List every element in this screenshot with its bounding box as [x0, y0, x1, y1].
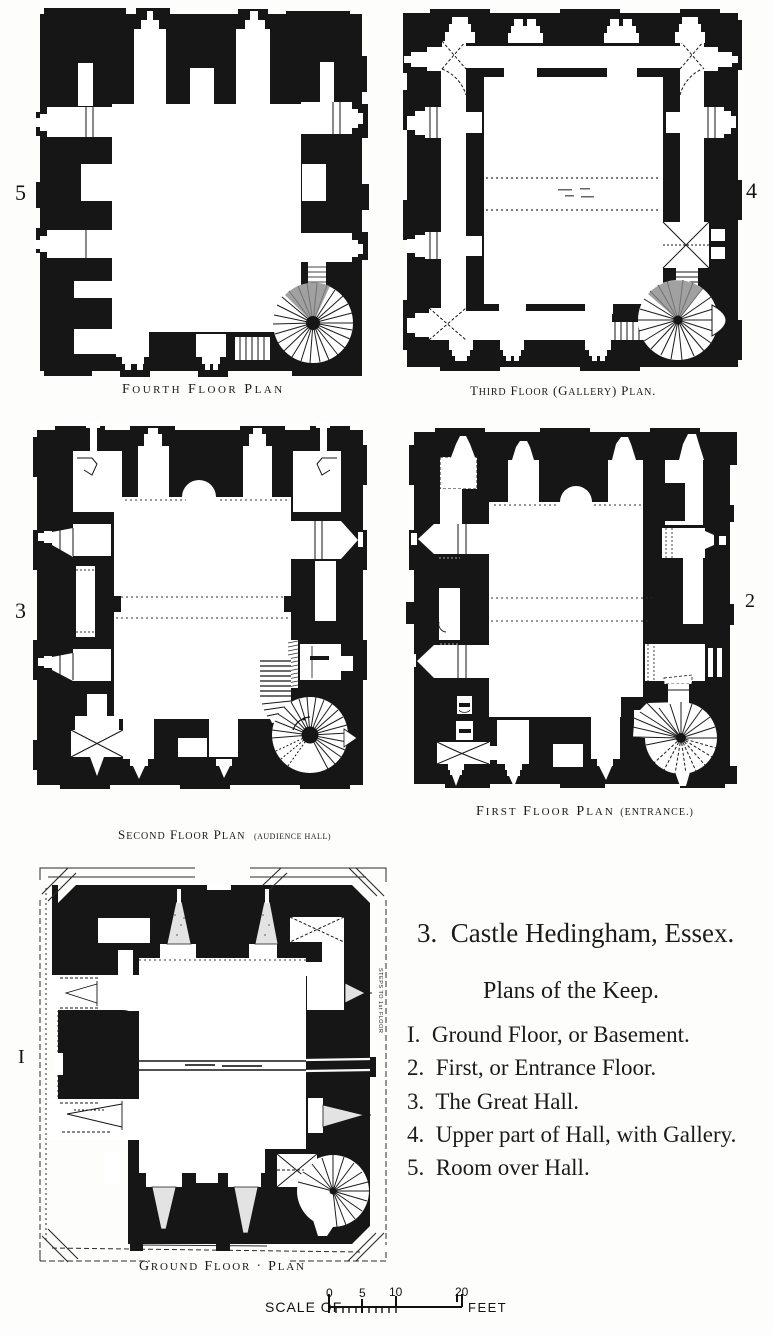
svg-text:SCALE OF: SCALE OF	[265, 1299, 342, 1315]
svg-text:FEET: FEET	[468, 1300, 507, 1315]
svg-text:0: 0	[326, 1286, 333, 1300]
svg-text:20: 20	[455, 1285, 469, 1299]
svg-text:STEPS TO 1st FLOOR: STEPS TO 1st FLOOR	[377, 968, 383, 1033]
svg-text:5: 5	[359, 1286, 366, 1300]
svg-text:10: 10	[389, 1285, 403, 1299]
